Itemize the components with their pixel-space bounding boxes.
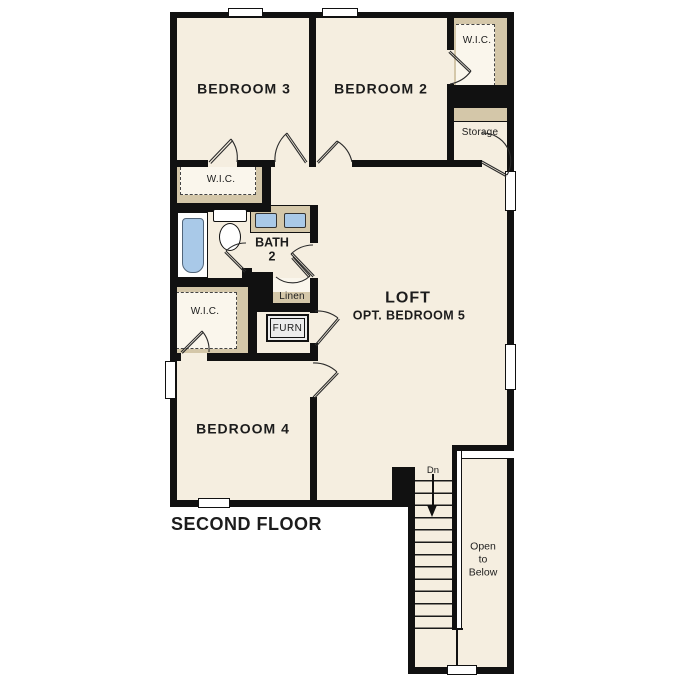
window — [165, 361, 176, 399]
bathtub-icon — [182, 218, 204, 273]
wall — [170, 12, 177, 507]
sink-icon — [255, 213, 277, 228]
wall — [507, 12, 514, 674]
wall — [262, 167, 271, 212]
wall — [310, 278, 318, 313]
furnace-label: FURN — [270, 318, 305, 338]
window — [505, 171, 516, 211]
sink-icon — [284, 213, 306, 228]
window — [447, 665, 477, 675]
wic-left-interior — [176, 292, 237, 349]
wic-top-interior — [456, 24, 495, 86]
room-label-wic-mid: W.I.C. — [207, 175, 235, 186]
wall — [447, 12, 454, 50]
room-label-bath: BATH — [255, 236, 289, 249]
wall — [408, 495, 415, 674]
room-label-loft: LOFT — [385, 291, 431, 308]
wall — [457, 451, 462, 630]
room-label-wic-top: W.I.C. — [463, 36, 491, 47]
wall — [170, 353, 181, 361]
wall — [170, 160, 208, 167]
wall — [237, 160, 275, 167]
wall — [309, 160, 316, 167]
room-label-bedroom3: BEDROOM 3 — [197, 82, 291, 97]
room-label-bedroom2: BEDROOM 2 — [334, 82, 428, 97]
room-label-bath-number: 2 — [269, 250, 276, 263]
window — [228, 8, 263, 17]
wall — [242, 268, 252, 282]
down-arrow-icon — [432, 474, 434, 506]
room-label-storage: Storage — [462, 128, 498, 139]
toilet-bowl-icon — [219, 223, 241, 251]
wall — [207, 353, 313, 361]
room-label-bedroom4: BEDROOM 4 — [196, 422, 290, 437]
wall — [456, 630, 458, 667]
plan-title: SECOND FLOOR — [171, 514, 322, 535]
stairs-down-label: Dn — [427, 466, 439, 476]
room-label-wic-left: W.I.C. — [191, 307, 219, 318]
window — [505, 344, 516, 390]
storage-shelf — [454, 108, 507, 122]
wall — [309, 12, 316, 160]
wall — [352, 160, 482, 167]
floor-plan: FURN — [0, 0, 687, 687]
wall — [257, 303, 311, 312]
room-label-linen: Linen — [279, 292, 304, 303]
window — [198, 498, 230, 508]
wall — [450, 85, 514, 108]
toilet-tank-icon — [213, 209, 247, 222]
open-to-below-label: Open to Below — [469, 541, 498, 580]
down-arrow-icon — [427, 505, 437, 517]
wall — [310, 397, 317, 500]
window — [322, 8, 358, 17]
furnace-unit: FURN — [266, 314, 309, 342]
room-label-loft-option: OPT. BEDROOM 5 — [353, 309, 466, 322]
wall — [310, 205, 318, 243]
wall — [170, 278, 250, 287]
